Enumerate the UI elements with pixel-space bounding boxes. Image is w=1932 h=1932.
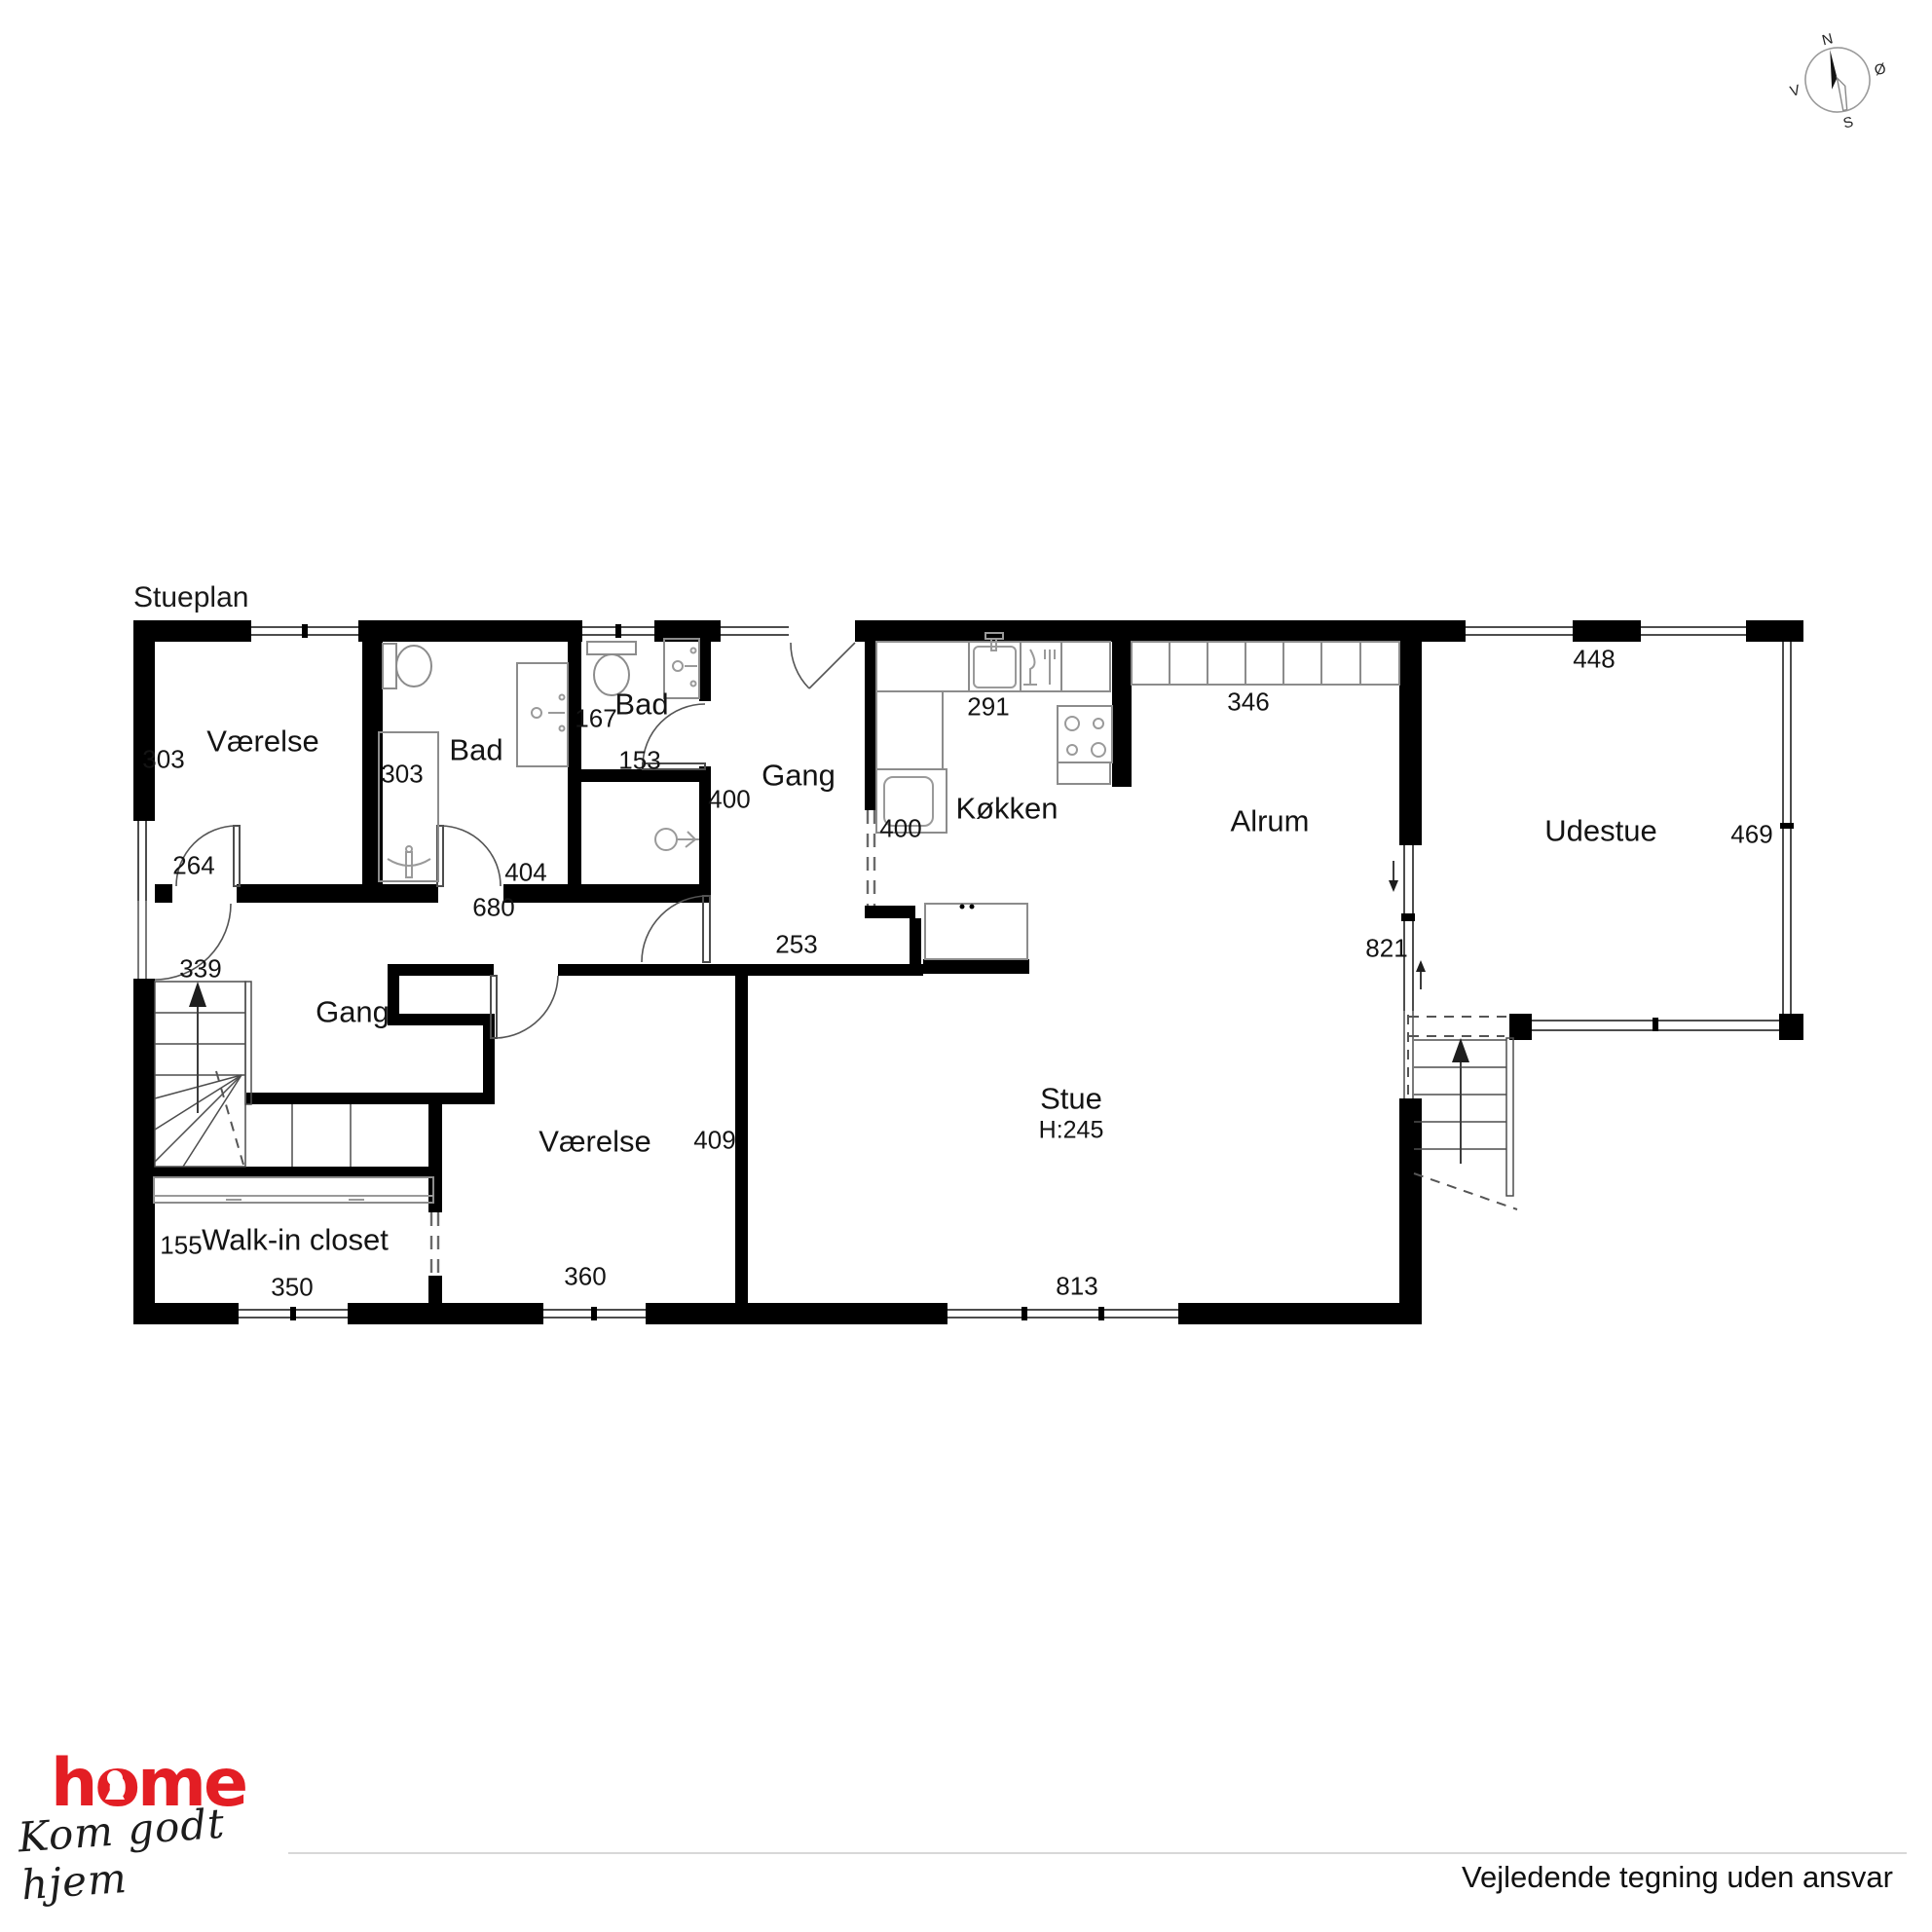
sliding-door-821 xyxy=(1389,845,1426,1098)
toilet-icon xyxy=(383,644,431,688)
alrum-cabinets xyxy=(1132,642,1399,685)
window xyxy=(1780,642,1794,1014)
dishwasher-icon xyxy=(1023,650,1055,685)
window xyxy=(1466,627,1573,635)
exterior-stairs xyxy=(1409,1017,1517,1209)
window xyxy=(239,1307,348,1320)
floor-plan xyxy=(0,0,1932,1932)
interior-walls xyxy=(146,642,1132,1303)
valve-icon xyxy=(655,829,699,850)
bathroom1-fixtures xyxy=(379,644,568,881)
doors xyxy=(155,643,855,1038)
sink-icon xyxy=(664,639,699,698)
footer-divider xyxy=(288,1852,1907,1854)
window xyxy=(543,1307,646,1320)
bathroom2-fixtures xyxy=(587,639,699,850)
vanity-icon xyxy=(517,663,568,766)
wardrobe xyxy=(154,1177,433,1203)
window xyxy=(138,821,146,901)
window xyxy=(947,1307,1178,1320)
window xyxy=(582,624,654,638)
interior-stairs xyxy=(155,982,351,1167)
door-frame xyxy=(138,901,146,979)
brand-tagline: Kom godt hjem xyxy=(17,1794,315,1910)
compass-w: V xyxy=(1789,82,1802,100)
footer-disclaimer: Vejledende tegning uden ansvar xyxy=(1462,1860,1893,1895)
window xyxy=(721,627,789,635)
page-title: Stueplan xyxy=(133,581,248,614)
window xyxy=(1532,1018,1779,1031)
kitchen-island xyxy=(925,904,1027,959)
compass-s: S xyxy=(1841,114,1855,132)
dashed-openings xyxy=(431,810,874,1276)
stove-icon xyxy=(1058,706,1112,784)
compass-icon: N Ø S V xyxy=(1784,21,1891,138)
toilet-icon xyxy=(587,642,636,695)
compass-e: Ø xyxy=(1873,60,1888,79)
window xyxy=(1641,627,1746,635)
window xyxy=(251,624,358,638)
bathtub-icon xyxy=(379,732,438,881)
compass-n: N xyxy=(1820,30,1835,49)
